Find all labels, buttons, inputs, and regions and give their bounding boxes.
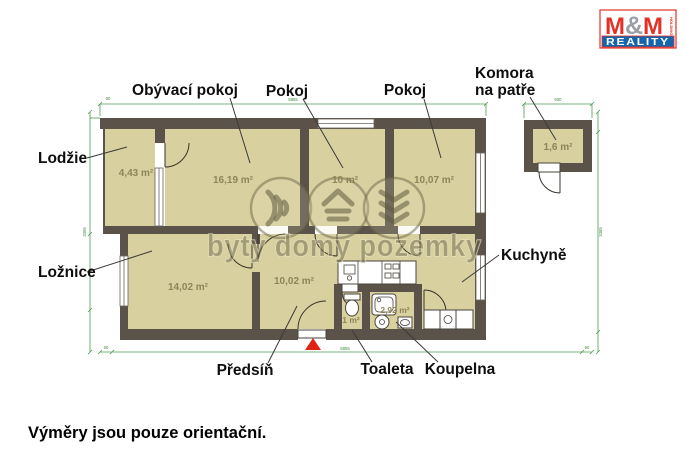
area-lodzie: 4,43 m² [119, 168, 154, 179]
logo-holding-text: HOLDING [669, 17, 674, 35]
label-komora-line1: Komora [475, 65, 534, 82]
door-arc-komora [539, 172, 560, 193]
label-lodzie: Lodžie [38, 150, 87, 167]
door-leaf-toilet [342, 284, 358, 292]
dim-label-bottom-stub2: 60 [104, 345, 109, 350]
label-kuchyne: Kuchyně [501, 247, 567, 264]
label-loznice: Ložnice [38, 264, 96, 281]
wall-lodzie-stub [155, 129, 165, 143]
label-toaleta: Toaleta [360, 361, 413, 378]
toilet-tank [344, 294, 360, 300]
door-leaf-komora [538, 163, 560, 172]
entrance-marker [305, 338, 321, 350]
wall-bath-kitchen [414, 284, 422, 329]
area-predsin: 10,02 m² [274, 276, 315, 287]
wall-toilet-bath [362, 292, 370, 329]
door-leaf-entrance [298, 330, 326, 338]
area-koupelna: 2,92 m² [380, 305, 409, 315]
label-obyvaci-pokoj: Obývací pokoj [132, 82, 238, 99]
kitchen-unit-2 [440, 310, 456, 329]
wall-komora-bottom-1 [524, 163, 538, 172]
toilet-bowl [346, 300, 359, 316]
wall-toilet-left [334, 292, 342, 329]
mm-reality-logo: M&M HOLDING REALITY [600, 10, 676, 48]
floor-plan-page: 5855 60 600 3365 3365 5855 60 60 [0, 0, 686, 457]
label-koupelna: Koupelna [425, 361, 496, 378]
wall-komora-bottom-2 [560, 163, 592, 172]
wall-block-top-2 [358, 284, 422, 292]
label-komora-line2: na patře [475, 82, 536, 99]
area-toaleta: 1 m² [342, 315, 360, 325]
wall-bedroom-hall-2 [252, 272, 260, 329]
wall-block-top-1 [334, 284, 342, 292]
kitchen-unit-3 [456, 310, 473, 329]
watermark-text: byty domy pozemky [207, 228, 482, 263]
dim-label-bottom: 5855 [340, 346, 350, 351]
wall-komora-top [524, 120, 592, 129]
dim-label-right: 3365 [598, 227, 603, 237]
area-obyvaci-pokoj: 16,19 m² [213, 175, 254, 186]
area-komora: 1,6 m² [544, 142, 574, 153]
disclaimer-text: Výměry jsou pouze orientační. [28, 424, 266, 442]
wall-bottom-left [120, 329, 298, 340]
kitchen-unit-1 [424, 310, 440, 329]
dim-label-komora: 600 [554, 97, 562, 102]
washing-machine [375, 315, 389, 329]
label-pokoj-2: Pokoj [384, 82, 426, 99]
dim-label-top-stub: 60 [106, 96, 111, 101]
logo-reality-text: REALITY [606, 37, 670, 48]
area-pokoj-1: 10 m² [332, 175, 359, 186]
wall-bottom-right [326, 329, 486, 340]
dim-label-bottom-stub: 60 [585, 345, 590, 350]
area-pokoj-2: 10,07 m² [414, 175, 455, 186]
wall-lodzie-outer [103, 129, 105, 226]
area-loznice: 14,02 m² [168, 282, 209, 293]
floor-plan-canvas: 5855 60 600 3365 3365 5855 60 60 [0, 0, 686, 457]
dim-label-left: 3365 [82, 227, 87, 237]
wall-top [100, 118, 486, 129]
watermark-waves-icon-arc3 [284, 202, 287, 214]
label-predsin: Předsíň [217, 362, 274, 379]
label-pokoj-1: Pokoj [266, 83, 308, 100]
